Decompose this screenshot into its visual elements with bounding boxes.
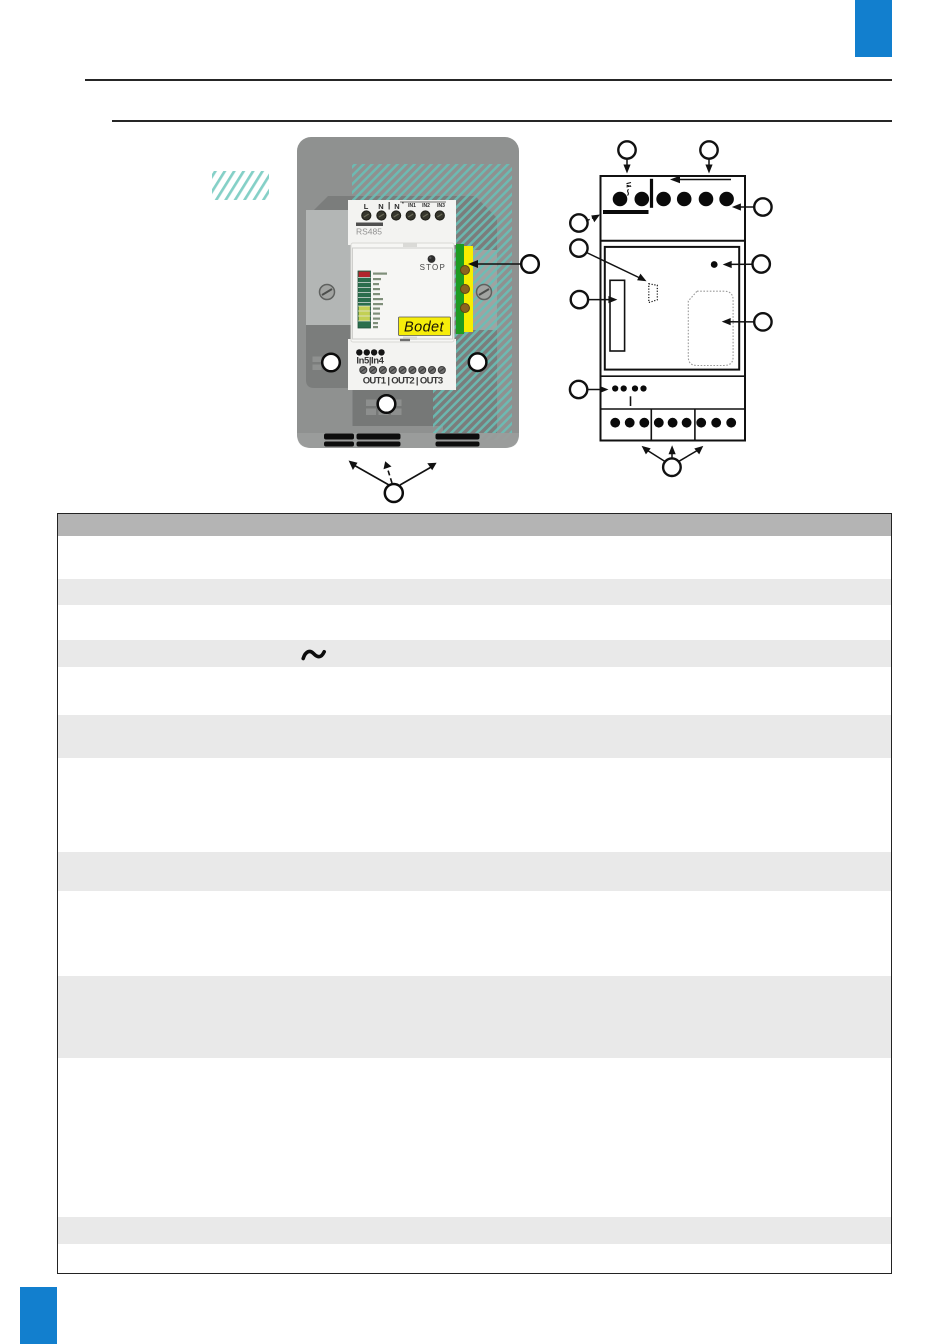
svg-text:L: L	[364, 202, 369, 211]
svg-text:RS485: RS485	[356, 227, 382, 237]
svg-text:IN1: IN1	[408, 203, 416, 209]
svg-text:N: N	[394, 202, 399, 211]
svg-text:IN2: IN2	[422, 203, 430, 209]
svg-text:OUT1 | OUT2 | OUT3: OUT1 | OUT2 | OUT3	[363, 376, 444, 387]
svg-text:IN3: IN3	[437, 203, 445, 209]
svg-text:Bodet: Bodet	[404, 320, 444, 336]
svg-text:STOP: STOP	[420, 263, 446, 272]
svg-text:N: N	[378, 202, 383, 211]
svg-text:In5|In4: In5|In4	[356, 355, 384, 366]
